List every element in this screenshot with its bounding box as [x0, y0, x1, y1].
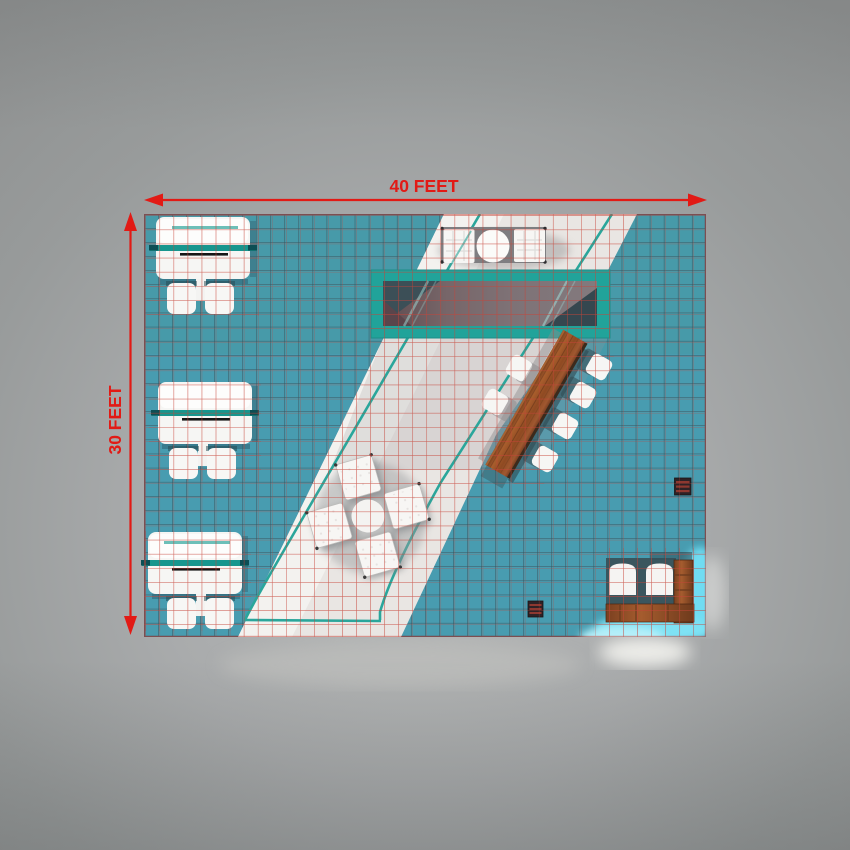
svg-text:30 FEET: 30 FEET	[105, 385, 125, 454]
svg-text:40 FEET: 40 FEET	[389, 176, 458, 196]
